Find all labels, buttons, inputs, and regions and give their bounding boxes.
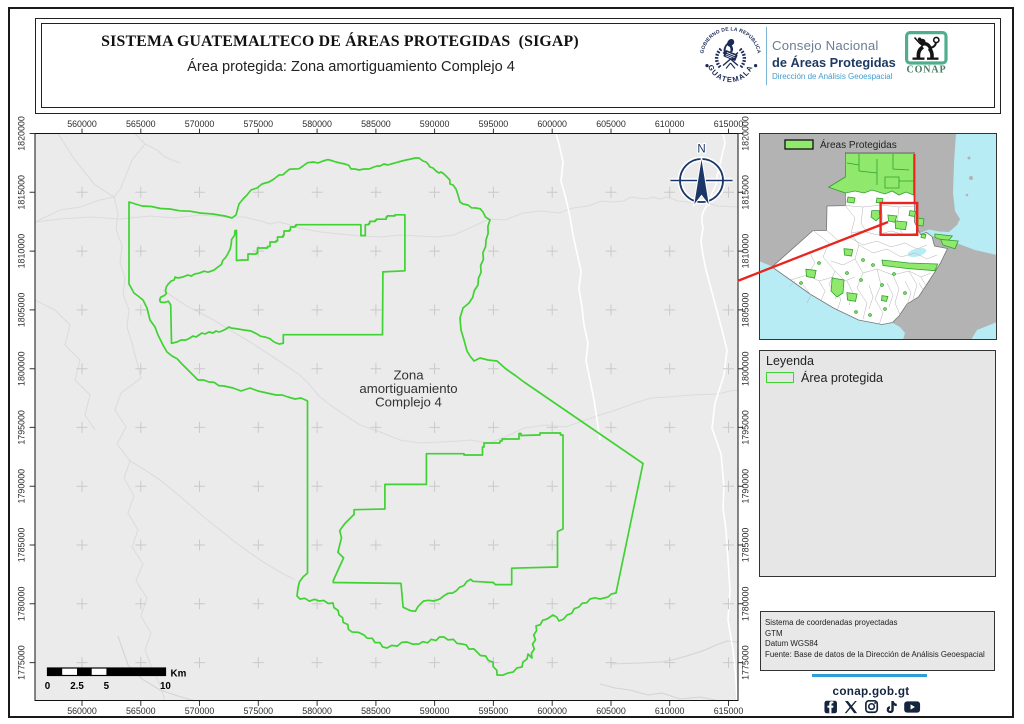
svg-text:1800000: 1800000 [741,351,751,386]
svg-text:590000: 590000 [420,119,450,129]
svg-text:1805000: 1805000 [17,293,27,328]
svg-text:585000: 585000 [361,119,391,129]
svg-text:600000: 600000 [537,706,567,716]
svg-text:565000: 565000 [126,706,156,716]
svg-text:1800000: 1800000 [17,351,27,386]
svg-text:1815000: 1815000 [741,175,751,210]
svg-text:605000: 605000 [596,119,626,129]
svg-text:1810000: 1810000 [741,234,751,269]
svg-text:1805000: 1805000 [741,293,751,328]
svg-text:610000: 610000 [655,706,685,716]
svg-text:1785000: 1785000 [741,528,751,563]
svg-text:1820000: 1820000 [741,116,751,151]
svg-text:580000: 580000 [302,706,332,716]
svg-text:1785000: 1785000 [17,528,27,563]
svg-text:1775000: 1775000 [741,645,751,680]
svg-text:570000: 570000 [185,119,215,129]
svg-text:590000: 590000 [420,706,450,716]
svg-text:595000: 595000 [479,706,509,716]
svg-text:1810000: 1810000 [17,234,27,269]
svg-text:595000: 595000 [479,119,509,129]
svg-text:565000: 565000 [126,119,156,129]
svg-text:1795000: 1795000 [17,410,27,445]
svg-text:575000: 575000 [243,706,273,716]
svg-text:575000: 575000 [243,119,273,129]
svg-text:1790000: 1790000 [741,469,751,504]
svg-text:615000: 615000 [714,706,744,716]
svg-text:570000: 570000 [185,706,215,716]
svg-text:615000: 615000 [714,119,744,129]
svg-text:605000: 605000 [596,706,626,716]
svg-text:585000: 585000 [361,706,391,716]
svg-text:1820000: 1820000 [17,116,27,151]
svg-text:560000: 560000 [67,706,97,716]
svg-text:1775000: 1775000 [17,645,27,680]
svg-text:610000: 610000 [655,119,685,129]
svg-text:580000: 580000 [302,119,332,129]
svg-text:1780000: 1780000 [17,586,27,621]
svg-text:1815000: 1815000 [17,175,27,210]
svg-text:1780000: 1780000 [741,586,751,621]
svg-text:1795000: 1795000 [741,410,751,445]
svg-text:560000: 560000 [67,119,97,129]
svg-text:1790000: 1790000 [17,469,27,504]
svg-text:600000: 600000 [537,119,567,129]
